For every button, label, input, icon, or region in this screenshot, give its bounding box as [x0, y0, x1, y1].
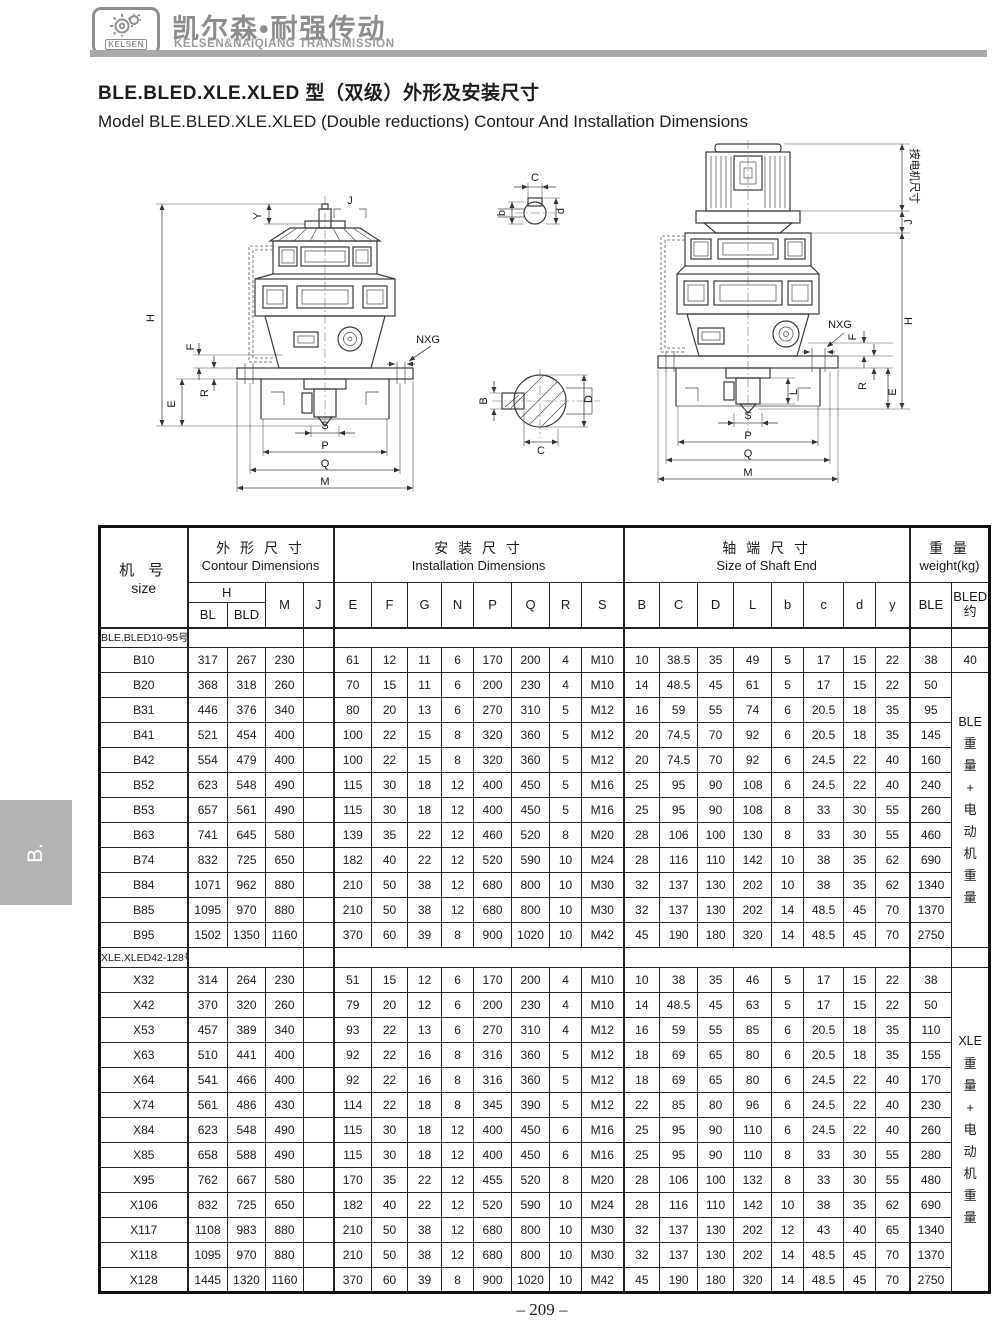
- col-group-shaft-end: 轴 端 尺 寸 Size of Shaft End: [624, 527, 910, 583]
- dim-cell: 548: [228, 1118, 266, 1143]
- dim-cell: 48.5: [804, 1268, 844, 1293]
- dim-cell: [304, 968, 334, 993]
- dim-cell: 370: [334, 923, 372, 948]
- dim-cell: 55: [876, 1168, 910, 1193]
- dim-cell: 130: [698, 1243, 734, 1268]
- dim-cell: 389: [228, 1018, 266, 1043]
- section-tab-label: B.: [24, 843, 48, 863]
- dim-cell: 5: [772, 648, 804, 673]
- dim-cell: 1370: [910, 1243, 952, 1268]
- dim-cell: 18: [844, 698, 876, 723]
- dim-cell: 400: [266, 748, 304, 773]
- dim-cell: 35: [844, 1193, 876, 1218]
- dim-cell: 5: [550, 1043, 582, 1068]
- dim-cell: 680: [474, 1243, 512, 1268]
- dim-cell: 580: [266, 823, 304, 848]
- dim-cell: 45: [844, 898, 876, 923]
- dim-cell: 48.5: [660, 993, 698, 1018]
- dim-cell: 690: [910, 848, 952, 873]
- dim-cell: 70: [876, 1243, 910, 1268]
- dim-cell: 460: [474, 823, 512, 848]
- dim-cell: 130: [734, 823, 772, 848]
- size-cell: X74: [100, 1093, 188, 1118]
- dim-cell: 554: [188, 748, 228, 773]
- dim-cell: 95: [660, 1143, 698, 1168]
- dim-cell: 22: [372, 1093, 408, 1118]
- dim-cell: 6: [550, 1118, 582, 1143]
- table-row: X856585884901153018124004506M16259590110…: [100, 1143, 990, 1168]
- dim-cell: 8: [442, 1068, 474, 1093]
- dim-cell: M16: [582, 773, 624, 798]
- dim-label-nxg-left: NXG: [416, 334, 440, 346]
- dim-cell: [304, 848, 334, 873]
- dim-cell: 1320: [228, 1268, 266, 1293]
- col-header-bled: BLED 约: [952, 583, 990, 628]
- dim-cell: 580: [266, 1168, 304, 1193]
- dim-cell: 15: [844, 993, 876, 1018]
- dim-cell: 8: [442, 1268, 474, 1293]
- col-header-r: R: [550, 583, 582, 628]
- dim-cell: 65: [698, 1068, 734, 1093]
- dim-label-e-left: E: [166, 400, 178, 407]
- dim-cell: 17: [804, 673, 844, 698]
- dim-cell: 50: [372, 898, 408, 923]
- size-cell: B41: [100, 723, 188, 748]
- col-header-p: P: [474, 583, 512, 628]
- dim-cell: 360: [512, 1068, 550, 1093]
- dim-cell: 14: [772, 898, 804, 923]
- table-row: B9515021350116037060398900102010M4245190…: [100, 923, 990, 948]
- dim-cell: 264: [228, 968, 266, 993]
- size-cell: X85: [100, 1143, 188, 1168]
- dim-cell: 70: [876, 1268, 910, 1293]
- dim-cell: 376: [228, 698, 266, 723]
- dim-cell: 28: [624, 823, 660, 848]
- dim-cell: 12: [442, 823, 474, 848]
- dim-cell: 38: [910, 968, 952, 993]
- dim-cell: 40: [876, 1093, 910, 1118]
- dim-cell: 18: [844, 1018, 876, 1043]
- dim-cell: 650: [266, 848, 304, 873]
- dim-cell: 520: [474, 848, 512, 873]
- dim-cell: [304, 1193, 334, 1218]
- dim-cell: 11: [408, 673, 442, 698]
- dim-cell: 310: [512, 698, 550, 723]
- dim-cell: 33: [804, 823, 844, 848]
- dim-cell: 85: [660, 1093, 698, 1118]
- dim-cell: 110: [698, 848, 734, 873]
- dim-cell: 12: [442, 873, 474, 898]
- dim-cell: 6: [772, 773, 804, 798]
- dim-cell: 6: [442, 673, 474, 698]
- dim-cell: 5: [772, 993, 804, 1018]
- dim-cell: 12: [442, 1168, 474, 1193]
- dim-cell: 15: [372, 673, 408, 698]
- dim-cell: 480: [910, 1168, 952, 1193]
- dim-cell: 680: [474, 898, 512, 923]
- dim-cell: 20: [372, 698, 408, 723]
- dim-cell: [304, 673, 334, 698]
- dim-cell: 667: [228, 1168, 266, 1193]
- dim-cell: 260: [910, 798, 952, 823]
- dim-cell: 145: [910, 723, 952, 748]
- dimension-table: 机 号 size 外 形 尺 寸 Contour Dimensions 安 装 …: [98, 525, 991, 1294]
- size-cell: B84: [100, 873, 188, 898]
- dim-cell: 454: [228, 723, 266, 748]
- dim-cell: 45: [624, 923, 660, 948]
- dim-cell: 1340: [910, 1218, 952, 1243]
- dim-cell: 35: [372, 823, 408, 848]
- size-cell: X84: [100, 1118, 188, 1143]
- dim-cell: 16: [408, 1043, 442, 1068]
- dim-cell: 340: [266, 698, 304, 723]
- dim-cell: 30: [844, 798, 876, 823]
- dim-cell: 30: [844, 823, 876, 848]
- dim-cell: M12: [582, 698, 624, 723]
- dim-cell: 17: [804, 993, 844, 1018]
- dim-cell: 85: [734, 1018, 772, 1043]
- dim-cell: 15: [844, 968, 876, 993]
- dim-cell: 115: [334, 798, 372, 823]
- dim-cell: M10: [582, 968, 624, 993]
- dim-cell: 12: [442, 1118, 474, 1143]
- size-cell: X32: [100, 968, 188, 993]
- dim-cell: 14: [624, 993, 660, 1018]
- dim-cell: 12: [442, 1218, 474, 1243]
- dim-cell: 400: [266, 723, 304, 748]
- dim-cell: 116: [660, 848, 698, 873]
- dim-cell: 40: [372, 1193, 408, 1218]
- dim-cell: 28: [624, 1193, 660, 1218]
- dim-cell: 832: [188, 1193, 228, 1218]
- dim-cell: 14: [624, 673, 660, 698]
- dim-cell: 28: [624, 848, 660, 873]
- dim-cell: 479: [228, 748, 266, 773]
- dim-cell: 106: [660, 823, 698, 848]
- dim-cell: 8: [772, 1168, 804, 1193]
- dim-cell: 1020: [512, 1268, 550, 1293]
- col-header-m: M: [266, 583, 304, 628]
- dim-cell: 96: [734, 1093, 772, 1118]
- dim-cell: 10: [550, 1193, 582, 1218]
- dim-cell: [304, 748, 334, 773]
- dim-cell: 10: [550, 873, 582, 898]
- dim-cell: 11: [408, 648, 442, 673]
- dim-cell: 69: [660, 1043, 698, 1068]
- dim-cell: 20: [624, 748, 660, 773]
- dim-cell: 1160: [266, 923, 304, 948]
- dim-cell: [952, 948, 990, 968]
- col-header-q: Q: [512, 583, 550, 628]
- dim-cell: 10: [772, 873, 804, 898]
- dim-cell: 24.5: [804, 748, 844, 773]
- dim-cell: 160: [910, 748, 952, 773]
- dim-cell: [188, 628, 304, 648]
- dim-cell: 61: [734, 673, 772, 698]
- dim-cell: 22: [844, 748, 876, 773]
- dim-cell: 1095: [188, 1243, 228, 1268]
- dim-cell: 16: [408, 1068, 442, 1093]
- dim-cell: 12: [442, 898, 474, 923]
- dim-cell: 74: [734, 698, 772, 723]
- dim-label-motor-note: 按电机尺寸: [908, 149, 922, 204]
- dim-cell: 45: [698, 673, 734, 698]
- dim-cell: [304, 773, 334, 798]
- shaft-end-detail-top: C b d: [496, 172, 567, 224]
- dim-cell: 260: [266, 673, 304, 698]
- dim-cell: [304, 1118, 334, 1143]
- dim-cell: 210: [334, 898, 372, 923]
- dim-cell: 345: [474, 1093, 512, 1118]
- table-row: B1031726723061121161702004M101038.535495…: [100, 648, 990, 673]
- dim-cell: 1340: [910, 873, 952, 898]
- dim-cell: 130: [698, 873, 734, 898]
- dim-label-l-right: L: [788, 389, 800, 395]
- col-header-g: G: [408, 583, 442, 628]
- dim-cell: 70: [698, 748, 734, 773]
- dim-cell: 20.5: [804, 1018, 844, 1043]
- dim-cell: 59: [660, 698, 698, 723]
- dim-cell: 55: [876, 1143, 910, 1168]
- dim-cell: 1502: [188, 923, 228, 948]
- group-header-row: XLE.XLED42-128号: [100, 948, 990, 968]
- table-row: X6351044140092221683163605M1218696580620…: [100, 1043, 990, 1068]
- dim-cell: [304, 723, 334, 748]
- dim-cell: 8: [772, 823, 804, 848]
- dim-cell: 22: [372, 1043, 408, 1068]
- dim-cell: 900: [474, 1268, 512, 1293]
- dim-cell: 441: [228, 1043, 266, 1068]
- dim-cell: 202: [734, 898, 772, 923]
- col-header-b-lower: b: [772, 583, 804, 628]
- dim-cell: 35: [372, 1168, 408, 1193]
- dim-cell: 230: [266, 648, 304, 673]
- dim-cell: 16: [624, 1018, 660, 1043]
- dim-cell: 130: [698, 898, 734, 923]
- col-header-size: 机 号 size: [100, 527, 188, 628]
- dim-cell: 69: [660, 1068, 698, 1093]
- table-row: X5345738934093221362703104M1216595585620…: [100, 1018, 990, 1043]
- size-cell: B95: [100, 923, 188, 948]
- dim-cell: 155: [910, 1043, 952, 1068]
- dim-cell: 400: [474, 773, 512, 798]
- catalog-page: KELSEN 凯尔森•耐强传动 KELSEN&NAIQIANG TRANSMIS…: [0, 0, 1000, 1341]
- dim-cell: 170: [474, 968, 512, 993]
- dim-cell: 116: [660, 1193, 698, 1218]
- dim-cell: 90: [698, 1118, 734, 1143]
- dim-cell: 202: [734, 1218, 772, 1243]
- dim-cell: 22: [844, 773, 876, 798]
- dim-cell: 320: [474, 748, 512, 773]
- dim-cell: 657: [188, 798, 228, 823]
- table-row: X4237032026079201262002304M101448.545635…: [100, 993, 990, 1018]
- dim-cell: 25: [624, 798, 660, 823]
- dim-cell: M42: [582, 923, 624, 948]
- dim-cell: 110: [734, 1118, 772, 1143]
- dim-cell: 50: [372, 873, 408, 898]
- dim-cell: 12: [408, 993, 442, 1018]
- dim-cell: 39: [408, 923, 442, 948]
- dim-cell: 5: [550, 1068, 582, 1093]
- dim-cell: [304, 798, 334, 823]
- size-cell: X64: [100, 1068, 188, 1093]
- dim-cell: 400: [266, 1043, 304, 1068]
- dim-cell: 6: [772, 748, 804, 773]
- dim-cell: 51: [334, 968, 372, 993]
- table-row: B7483272565018240221252059010M2428116110…: [100, 848, 990, 873]
- dim-label-q-left: Q: [321, 458, 330, 470]
- dim-cell: 6: [442, 1018, 474, 1043]
- dim-cell: 70: [876, 923, 910, 948]
- size-cell: B53: [100, 798, 188, 823]
- dim-cell: 22: [844, 1118, 876, 1143]
- dim-cell: M12: [582, 1093, 624, 1118]
- dim-cell: 880: [266, 898, 304, 923]
- dim-cell: 10: [550, 923, 582, 948]
- brand-logo: KELSEN: [92, 7, 160, 55]
- dim-cell: 22: [372, 748, 408, 773]
- dim-cell: 22: [408, 1193, 442, 1218]
- dim-cell: [304, 1043, 334, 1068]
- merged-weight-note: BLE重量+电动机重量: [952, 673, 990, 948]
- dim-cell: 5: [550, 798, 582, 823]
- dim-cell: 100: [698, 823, 734, 848]
- dim-cell: 108: [734, 798, 772, 823]
- dim-cell: 8: [772, 798, 804, 823]
- dim-cell: 520: [512, 1168, 550, 1193]
- dim-cell: 30: [372, 798, 408, 823]
- dim-cell: 725: [228, 1193, 266, 1218]
- dim-cell: 22: [372, 1018, 408, 1043]
- dim-cell: 60: [372, 923, 408, 948]
- dim-cell: 45: [844, 1268, 876, 1293]
- dim-cell: 170: [334, 1168, 372, 1193]
- page-number: – 209 –: [98, 1300, 986, 1320]
- dim-cell: [304, 923, 334, 948]
- dim-cell: 38: [660, 968, 698, 993]
- dim-cell: 400: [266, 1068, 304, 1093]
- dim-cell: 115: [334, 1118, 372, 1143]
- table-row: X74561486430114221883453905M122285809662…: [100, 1093, 990, 1118]
- dim-cell: 316: [474, 1068, 512, 1093]
- dim-cell: 490: [266, 798, 304, 823]
- dim-cell: 340: [266, 1018, 304, 1043]
- col-header-f: F: [372, 583, 408, 628]
- dim-cell: 2750: [910, 923, 952, 948]
- dim-label-nxg-right: NXG: [828, 319, 852, 331]
- table-row: X117110898388021050381268080010M30321371…: [100, 1218, 990, 1243]
- dim-cell: 8: [550, 1168, 582, 1193]
- dim-cell: 368: [188, 673, 228, 698]
- size-cell: B85: [100, 898, 188, 923]
- dim-cell: [304, 1093, 334, 1118]
- dim-cell: 22: [876, 968, 910, 993]
- dim-cell: 18: [408, 1093, 442, 1118]
- dim-cell: 4: [550, 1018, 582, 1043]
- dim-cell: 1108: [188, 1218, 228, 1243]
- dim-cell: 490: [266, 1143, 304, 1168]
- dim-cell: 92: [734, 748, 772, 773]
- dim-cell: 100: [334, 723, 372, 748]
- dim-cell: 137: [660, 898, 698, 923]
- dim-cell: 5: [550, 723, 582, 748]
- dim-cell: 588: [228, 1143, 266, 1168]
- dim-cell: M24: [582, 1193, 624, 1218]
- dim-cell: 32: [624, 1243, 660, 1268]
- dim-cell: 240: [910, 773, 952, 798]
- dim-cell: 6: [772, 1068, 804, 1093]
- dim-cell: 6: [772, 698, 804, 723]
- dim-cell: 35: [876, 1043, 910, 1068]
- dim-cell: 22: [876, 673, 910, 698]
- dim-cell: 520: [512, 823, 550, 848]
- dim-cell: [304, 1143, 334, 1168]
- dim-cell: 360: [512, 1043, 550, 1068]
- dim-cell: 12: [442, 773, 474, 798]
- dim-cell: M30: [582, 1243, 624, 1268]
- detail-bottom-label-d: D: [583, 395, 595, 403]
- dim-cell: 46: [734, 968, 772, 993]
- dim-cell: 55: [698, 698, 734, 723]
- dim-cell: 762: [188, 1168, 228, 1193]
- dim-cell: M10: [582, 673, 624, 698]
- col-header-l: L: [734, 583, 772, 628]
- dim-cell: 446: [188, 698, 228, 723]
- dim-cell: M16: [582, 1143, 624, 1168]
- dim-cell: 65: [876, 1218, 910, 1243]
- dim-cell: 6: [442, 698, 474, 723]
- dim-label-r-right: R: [857, 382, 869, 390]
- dim-cell: 61: [334, 648, 372, 673]
- dim-cell: [304, 628, 334, 648]
- dim-cell: 38: [804, 1193, 844, 1218]
- table-row: X6454146640092221683163605M1218696580624…: [100, 1068, 990, 1093]
- dim-cell: 80: [698, 1093, 734, 1118]
- col-header-j: J: [304, 583, 334, 628]
- dim-cell: 38: [804, 848, 844, 873]
- dim-cell: 12: [372, 648, 408, 673]
- dim-cell: 548: [228, 773, 266, 798]
- dim-cell: 17: [804, 968, 844, 993]
- dim-cell: [304, 1243, 334, 1268]
- dim-cell: 22: [372, 723, 408, 748]
- dim-cell: M20: [582, 823, 624, 848]
- dim-cell: 13: [408, 1018, 442, 1043]
- dim-cell: 15: [372, 968, 408, 993]
- dim-label-j-left: J: [347, 195, 353, 207]
- dim-cell: 4: [550, 993, 582, 1018]
- dim-cell: 17: [804, 648, 844, 673]
- dim-label-f-left: F: [185, 343, 197, 350]
- dim-cell: 2750: [910, 1268, 952, 1293]
- dim-cell: 35: [876, 698, 910, 723]
- dim-cell: 590: [512, 848, 550, 873]
- dim-cell: 318: [228, 673, 266, 698]
- dim-cell: 561: [188, 1093, 228, 1118]
- dim-cell: [304, 648, 334, 673]
- dim-label-h-right: H: [903, 317, 915, 325]
- dim-cell: 10: [624, 648, 660, 673]
- dim-cell: 200: [474, 993, 512, 1018]
- size-cell: X42: [100, 993, 188, 1018]
- dim-cell: M16: [582, 798, 624, 823]
- dim-cell: 15: [844, 673, 876, 698]
- dim-cell: 900: [474, 923, 512, 948]
- dim-cell: 59: [660, 1018, 698, 1043]
- dim-cell: 32: [624, 873, 660, 898]
- dim-cell: 92: [334, 1068, 372, 1093]
- dim-cell: 320: [734, 1268, 772, 1293]
